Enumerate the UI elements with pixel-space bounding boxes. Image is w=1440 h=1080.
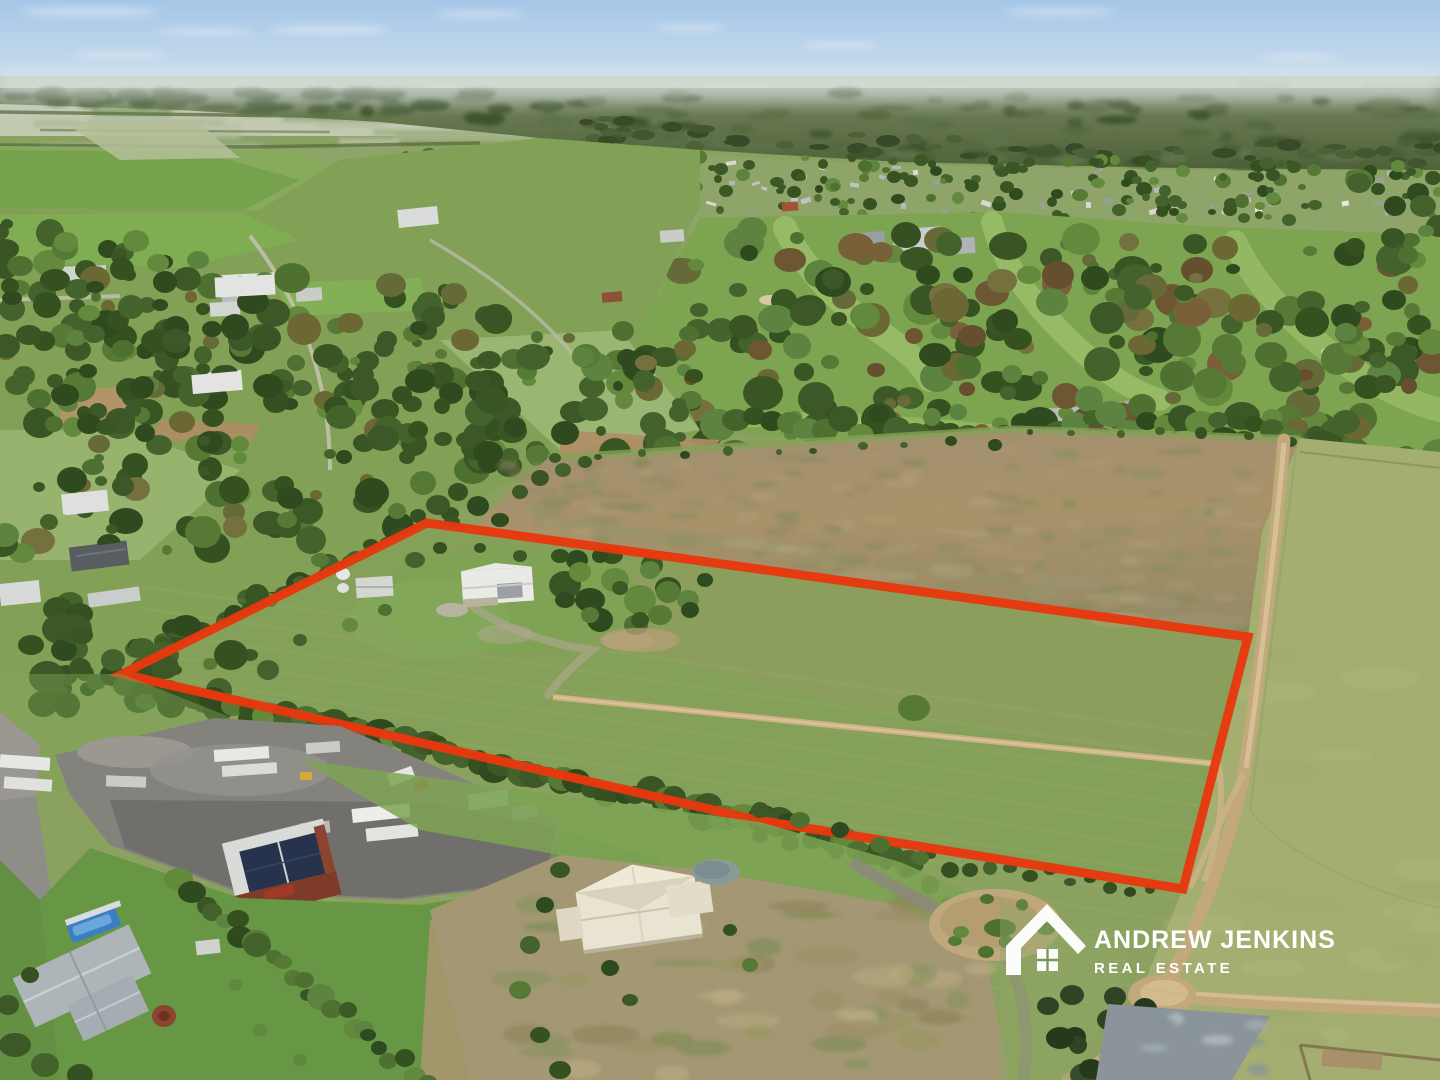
svg-text:ANDREW JENKINS: ANDREW JENKINS (1094, 926, 1336, 954)
svg-text:REAL ESTATE: REAL ESTATE (1094, 960, 1233, 977)
